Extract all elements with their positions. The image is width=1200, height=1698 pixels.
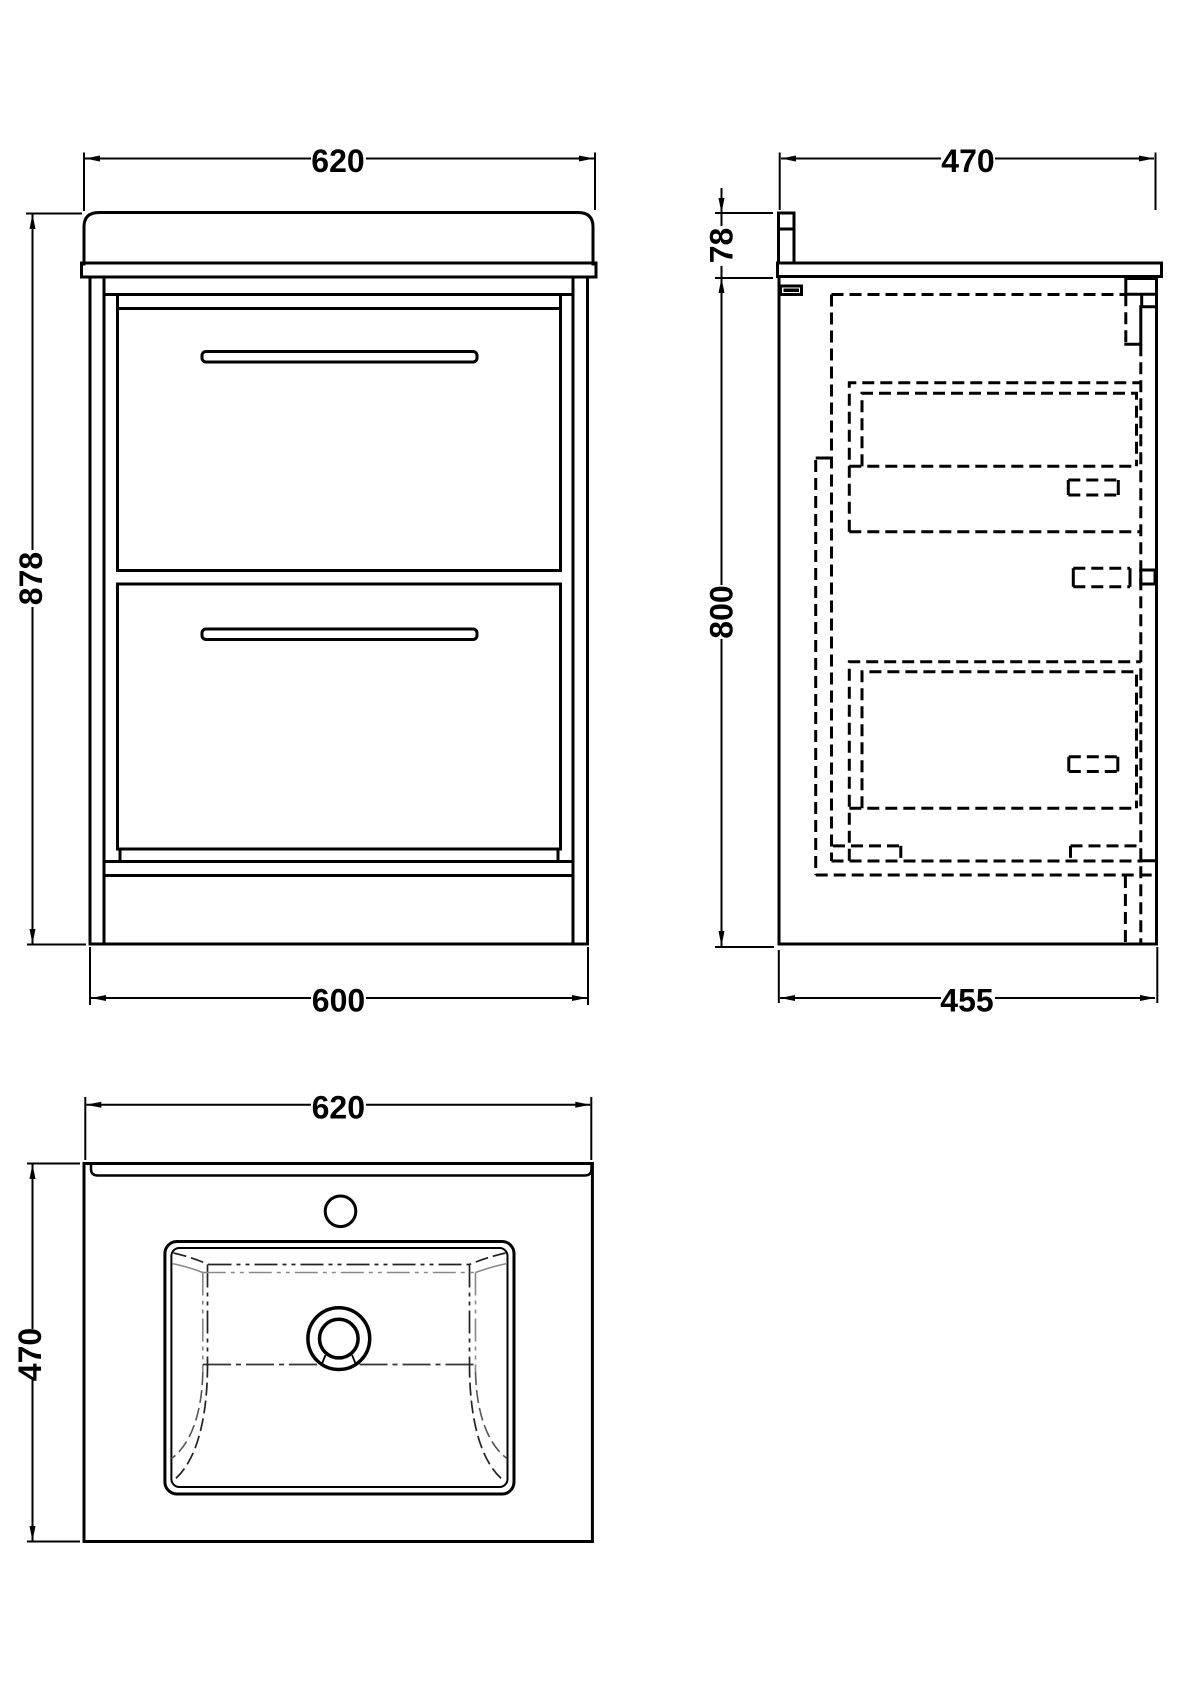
svg-text:800: 800 <box>704 585 740 638</box>
svg-text:620: 620 <box>311 143 364 179</box>
svg-text:878: 878 <box>13 552 49 605</box>
svg-text:455: 455 <box>940 983 993 1019</box>
svg-text:620: 620 <box>312 1089 365 1125</box>
svg-text:470: 470 <box>12 1328 48 1381</box>
svg-text:600: 600 <box>312 983 365 1019</box>
svg-text:470: 470 <box>941 143 994 179</box>
svg-text:78: 78 <box>704 228 740 264</box>
